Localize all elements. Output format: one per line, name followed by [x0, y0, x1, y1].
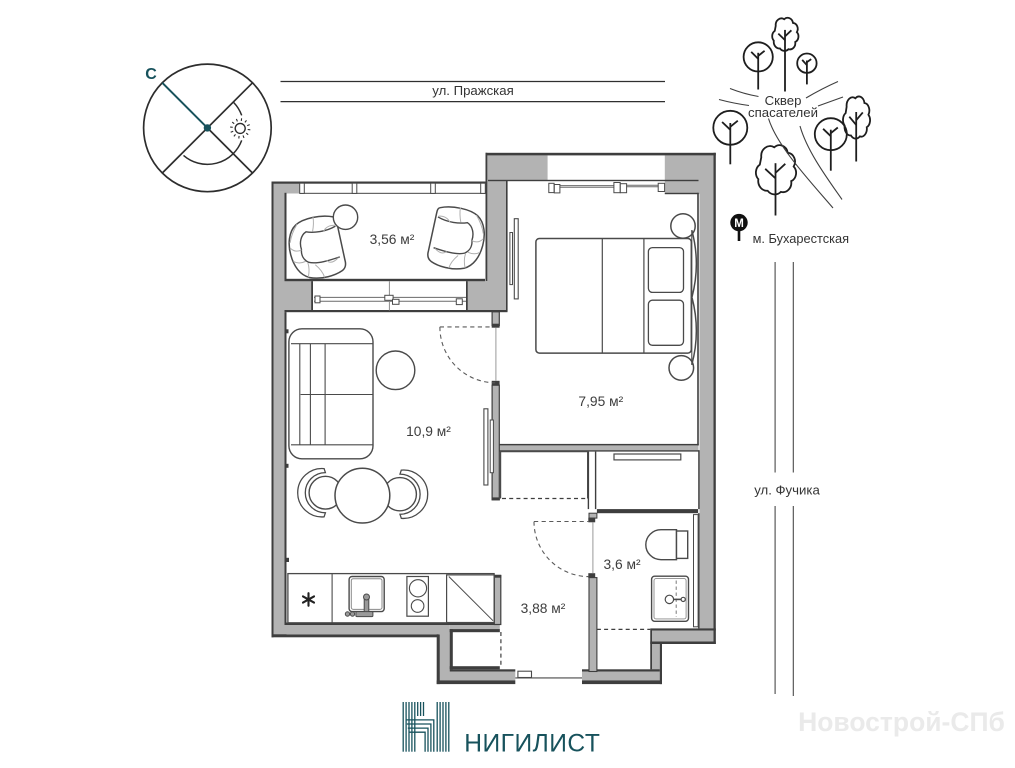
svg-text:НИГИЛИСТ: НИГИЛИСТ — [464, 731, 600, 758]
svg-text:ул. Пражская: ул. Пражская — [432, 83, 513, 98]
svg-text:Новострой-СПб: Новострой-СПб — [798, 707, 1005, 737]
svg-text:спасателей: спасателей — [748, 105, 818, 120]
svg-text:3,56 м²: 3,56 м² — [370, 232, 415, 247]
svg-text:3,6 м²: 3,6 м² — [603, 557, 640, 572]
svg-text:С: С — [145, 66, 157, 83]
svg-text:ул. Фучика: ул. Фучика — [754, 483, 820, 498]
svg-text:м. Бухарестская: м. Бухарестская — [753, 231, 850, 246]
svg-text:3,88 м²: 3,88 м² — [521, 601, 566, 616]
svg-text:10,9 м²: 10,9 м² — [406, 424, 451, 439]
svg-text:7,95 м²: 7,95 м² — [578, 394, 623, 409]
svg-text:М: М — [734, 218, 744, 230]
